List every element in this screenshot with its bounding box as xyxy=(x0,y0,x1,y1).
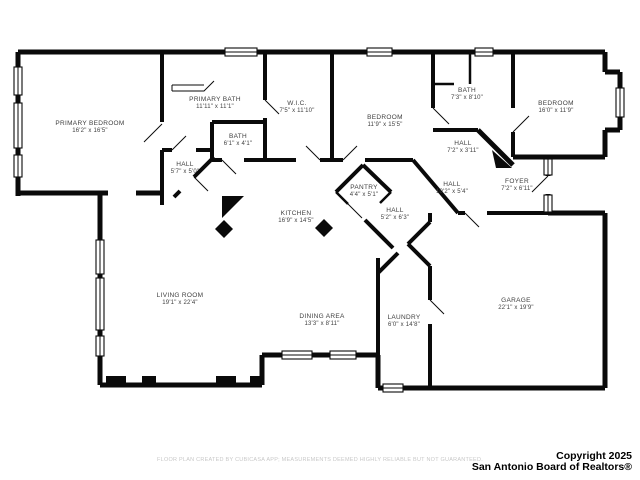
columns-and-wedges xyxy=(106,150,512,384)
copyright-notice: Copyright 2025 San Antonio Board of Real… xyxy=(472,451,632,474)
column-diamond xyxy=(315,219,333,237)
windows xyxy=(14,48,624,392)
disclaimer-text: FLOOR PLAN CREATED BY CUBICASA APP; MEAS… xyxy=(157,457,483,463)
exterior-walls xyxy=(18,52,620,388)
kitchen-corner-wedge xyxy=(222,196,244,218)
floor-plan-drawing xyxy=(0,0,640,480)
bath-counter-outline xyxy=(172,81,214,91)
door-leaves xyxy=(144,100,548,314)
interior-walls xyxy=(162,52,548,388)
copyright-owner: San Antonio Board of Realtors® xyxy=(472,462,632,473)
floor-plan: PRIMARY BEDROOM 16'2" x 16'5" PRIMARY BA… xyxy=(0,0,640,480)
column-diamond xyxy=(215,220,233,238)
